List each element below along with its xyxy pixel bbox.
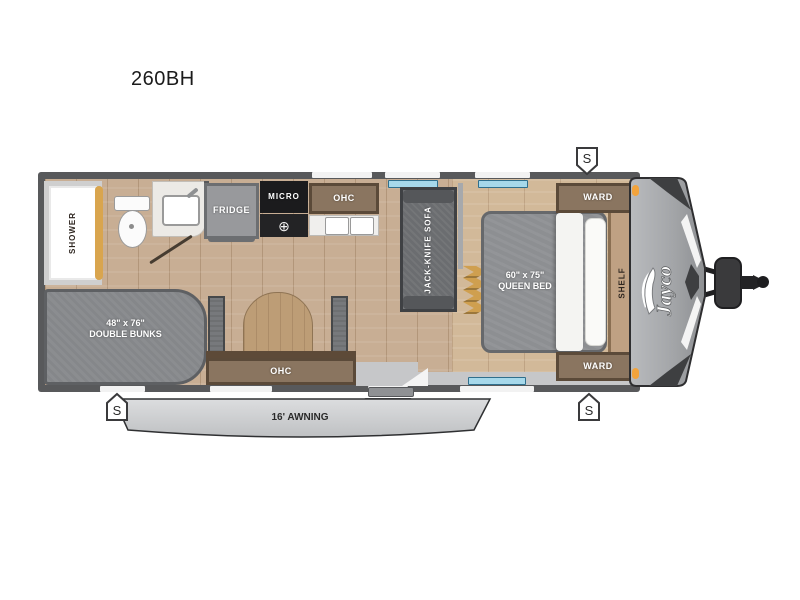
- queen-bed-name: QUEEN BED: [487, 281, 563, 292]
- kitchen-ohc-label: OHC: [333, 193, 355, 204]
- clearance-light-top: [632, 185, 639, 196]
- page-title: 260BH: [131, 68, 195, 91]
- sofa-partition-wall: [458, 183, 463, 269]
- window-top-bed: [475, 172, 530, 178]
- awning: 16' AWNING: [110, 398, 495, 442]
- window-top-kitchen: [312, 172, 372, 178]
- cooktop: ⊕: [260, 214, 308, 237]
- queen-bed-size: 60" x 75": [487, 270, 563, 281]
- brand-logo: Jayco: [652, 266, 676, 317]
- fridge: FRIDGE: [204, 183, 259, 239]
- speaker-letter: S: [583, 151, 592, 166]
- window-top-sofa: [385, 172, 440, 178]
- shower: SHOWER: [44, 181, 102, 285]
- shelf-label: SHELF: [618, 267, 628, 298]
- kitchen-sink-right: [350, 217, 374, 235]
- window-bottom-dinette: [210, 386, 272, 392]
- dinette-bench-left: [208, 296, 225, 354]
- dinette-overhead-cabinet: OHC: [206, 358, 356, 385]
- bed-pillow: [585, 218, 606, 346]
- toilet: [118, 210, 147, 248]
- hitch-ball: [757, 276, 769, 288]
- bath-sink: [162, 195, 200, 226]
- speaker-marker-bottom-left: S: [105, 392, 129, 422]
- toilet-flush-icon: [129, 224, 134, 229]
- speaker-letter: S: [113, 403, 122, 418]
- entry-step-1: [368, 387, 414, 397]
- microwave: MICRO: [260, 181, 308, 213]
- clearance-light-bottom: [632, 368, 639, 379]
- window-glass-bed: [478, 180, 528, 188]
- queen-bed-label: 60" x 75" QUEEN BED: [487, 270, 563, 293]
- micro-label: MICRO: [268, 192, 300, 202]
- toilet-tank: [114, 196, 150, 211]
- dinette-ohc-label: OHC: [270, 366, 292, 377]
- dinette-base: [206, 351, 356, 358]
- speaker-letter: S: [585, 403, 594, 418]
- ward-bottom-label: WARD: [583, 361, 613, 372]
- fridge-vent: [208, 236, 255, 242]
- shower-label: SHOWER: [68, 212, 78, 254]
- front-cap: Jayco: [627, 176, 777, 388]
- sofa-label: JACK-KNIFE SOFA: [424, 206, 434, 293]
- awning-label: 16' AWNING: [271, 412, 328, 423]
- burner-icon: ⊕: [278, 219, 290, 233]
- kitchen-sink-left: [325, 217, 349, 235]
- kitchen-overhead-cabinet: OHC: [309, 183, 379, 214]
- speaker-marker-top: S: [575, 146, 599, 176]
- hitch-stem: [741, 276, 753, 289]
- bunks-size: 48" x 76": [44, 318, 207, 329]
- fridge-label: FRIDGE: [213, 205, 250, 216]
- window-glass-bottom: [468, 377, 526, 385]
- sofa-arm-bottom: [403, 296, 454, 309]
- sofa-arm-top: [403, 190, 454, 203]
- shower-door: [95, 186, 103, 280]
- window-bottom-bed: [460, 386, 534, 392]
- bunks-label: 48" x 76" DOUBLE BUNKS: [44, 318, 207, 341]
- dinette-table: [243, 292, 313, 353]
- propane-cover: [715, 258, 741, 308]
- speaker-marker-bottom-right: S: [577, 392, 601, 422]
- floorplan-page: 260BH SHOWER 48" x 76" DOUBLE BUNKS FRID…: [0, 0, 800, 600]
- bunks-name: DOUBLE BUNKS: [44, 329, 207, 340]
- dinette-bench-right: [331, 296, 348, 354]
- jack-knife-sofa: JACK-KNIFE SOFA: [400, 187, 457, 312]
- ward-top-label: WARD: [583, 192, 613, 203]
